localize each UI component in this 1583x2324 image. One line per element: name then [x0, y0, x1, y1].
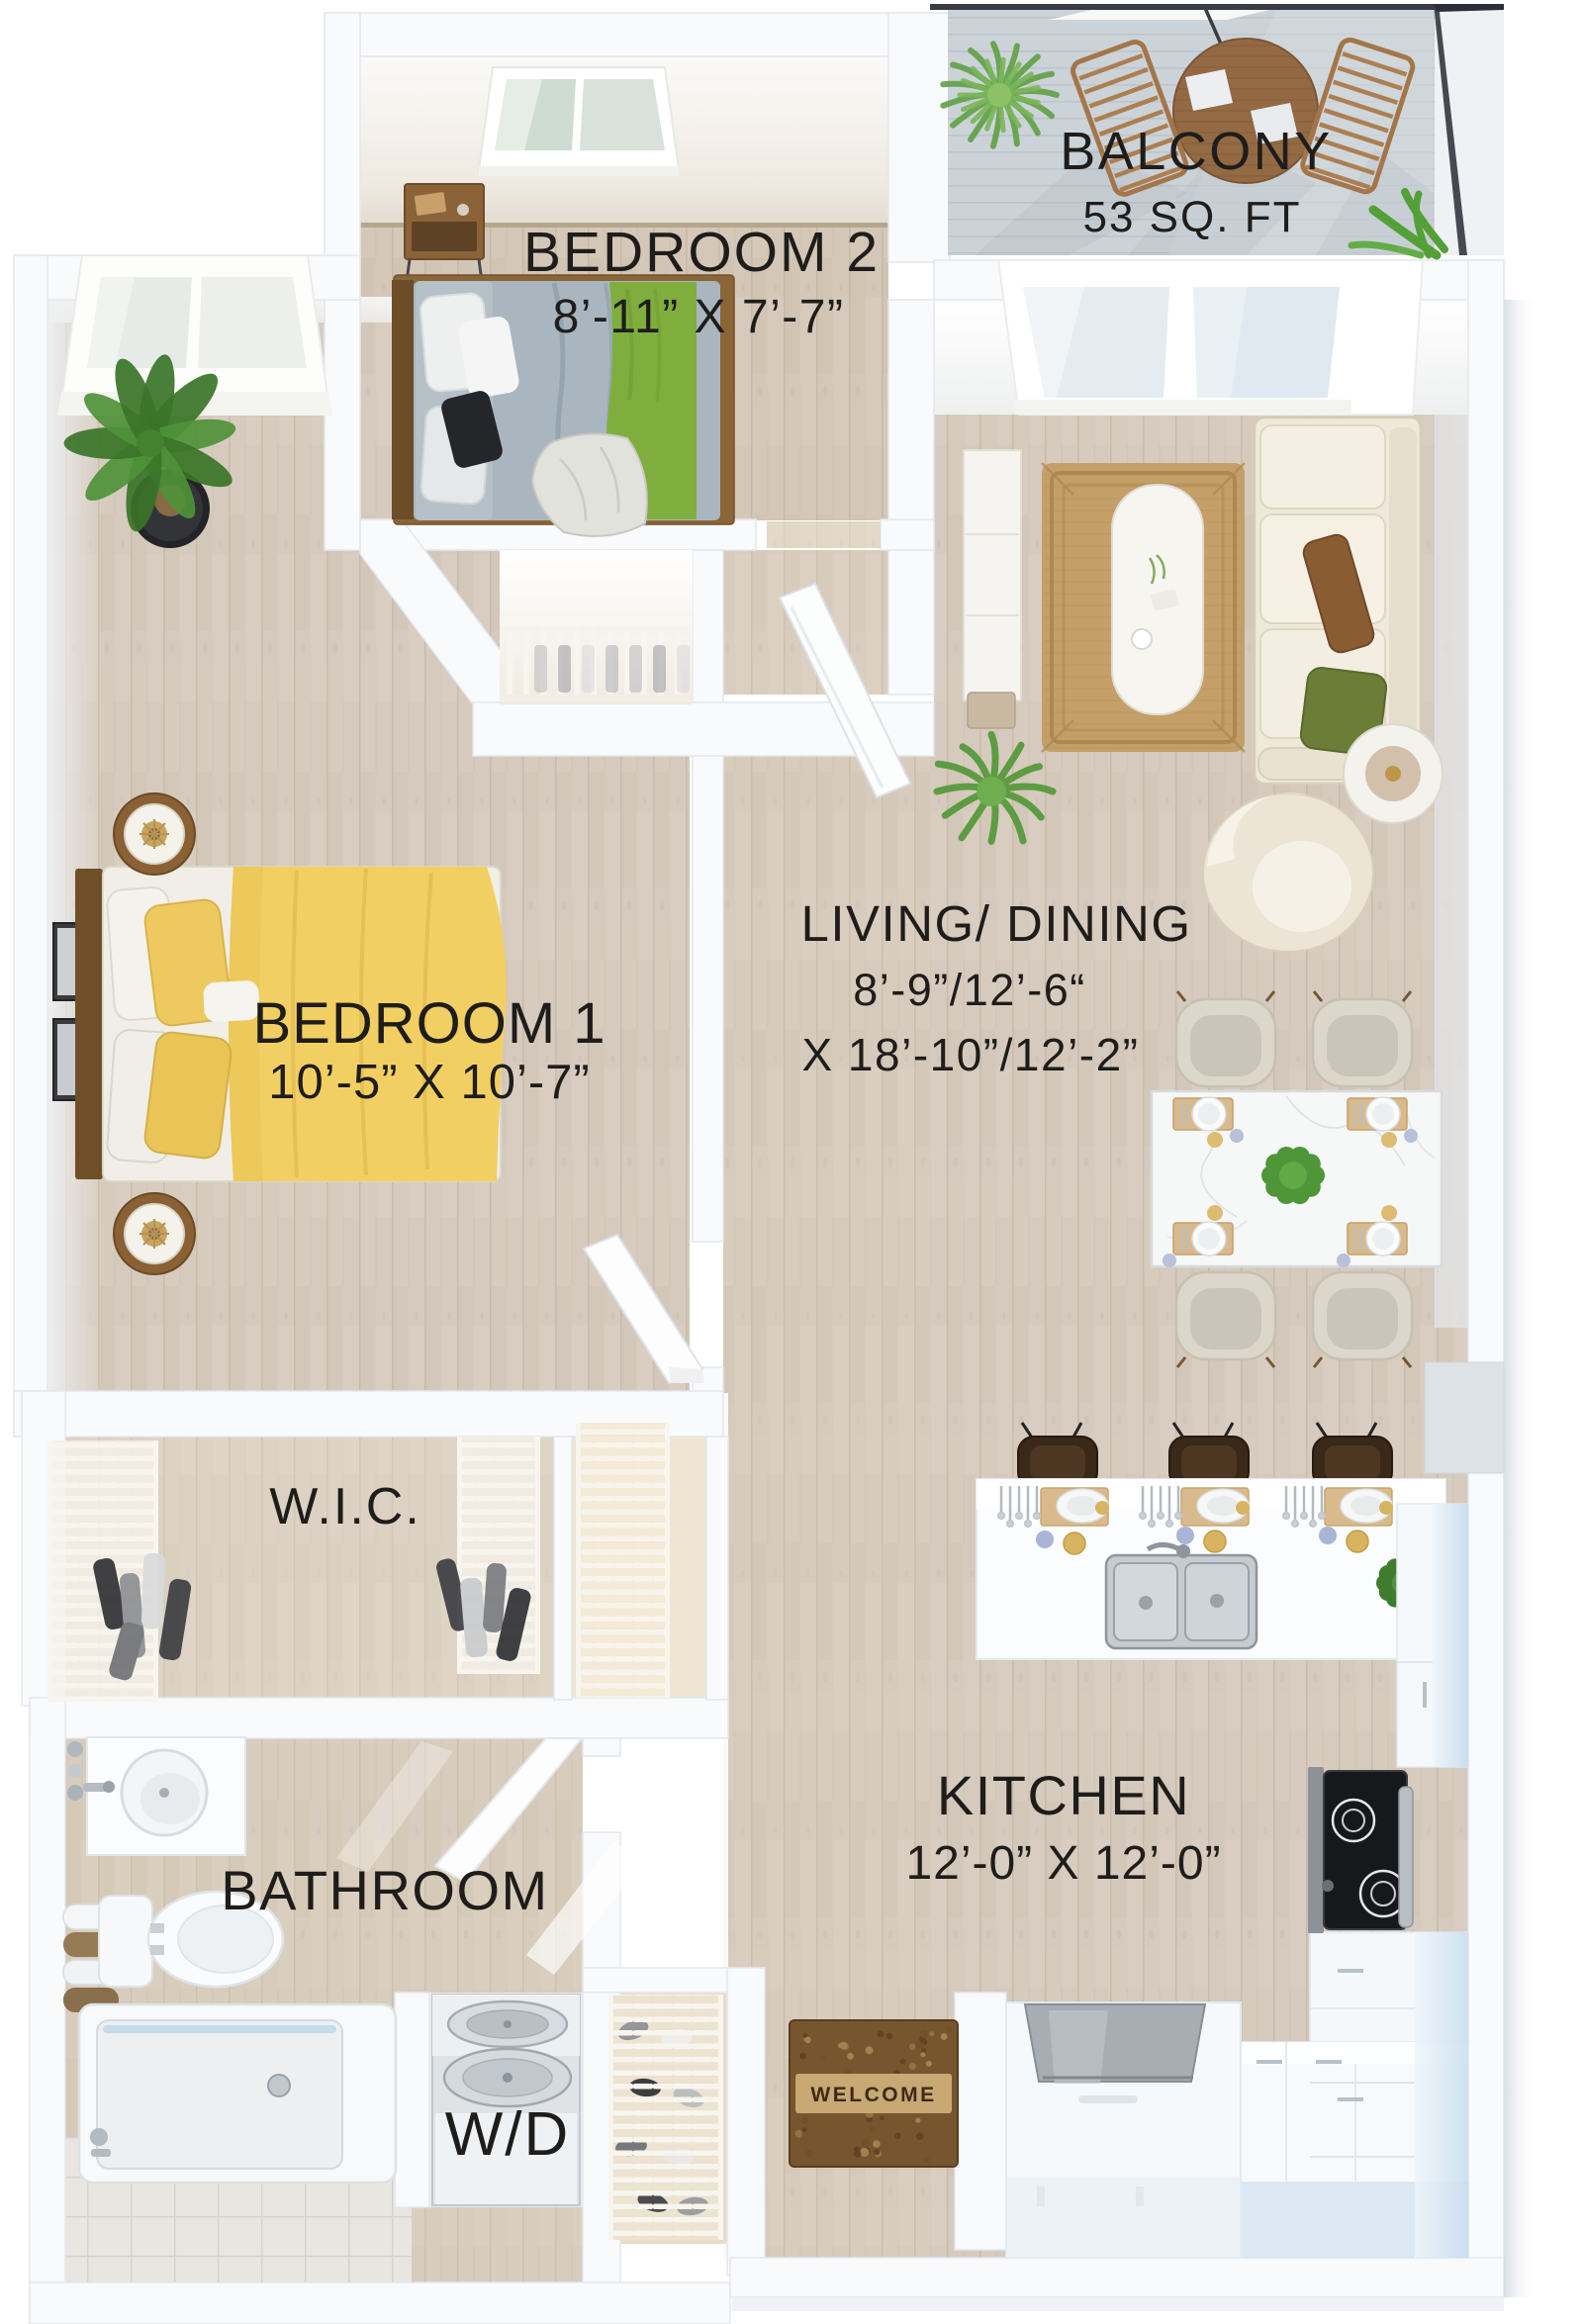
svg-text:W/D: W/D — [445, 2100, 571, 2169]
svg-text:10’-5” X 10’-7”: 10’-5” X 10’-7” — [268, 1056, 590, 1109]
svg-text:8’-11” X 7’-7”: 8’-11” X 7’-7” — [553, 291, 845, 343]
svg-text:KITCHEN: KITCHEN — [937, 1764, 1190, 1826]
svg-text:LIVING/ DINING: LIVING/ DINING — [800, 895, 1191, 952]
svg-text:12’-0” X 12’-0”: 12’-0” X 12’-0” — [905, 1837, 1221, 1890]
svg-text:X 18’-10”/12’-2”: X 18’-10”/12’-2” — [801, 1029, 1139, 1080]
svg-text:8’-9”/12’-6“: 8’-9”/12’-6“ — [853, 965, 1086, 1015]
svg-text:BEDROOM 1: BEDROOM 1 — [252, 991, 605, 1056]
svg-text:W.I.C.: W.I.C. — [269, 1478, 421, 1535]
svg-text:BATHROOM: BATHROOM — [221, 1859, 548, 1921]
svg-text:53 SQ. FT: 53 SQ. FT — [1083, 193, 1302, 241]
svg-text:BEDROOM 2: BEDROOM 2 — [523, 221, 880, 284]
svg-text:BALCONY: BALCONY — [1060, 122, 1333, 181]
svg-text:WELCOME: WELCOME — [810, 2084, 936, 2106]
